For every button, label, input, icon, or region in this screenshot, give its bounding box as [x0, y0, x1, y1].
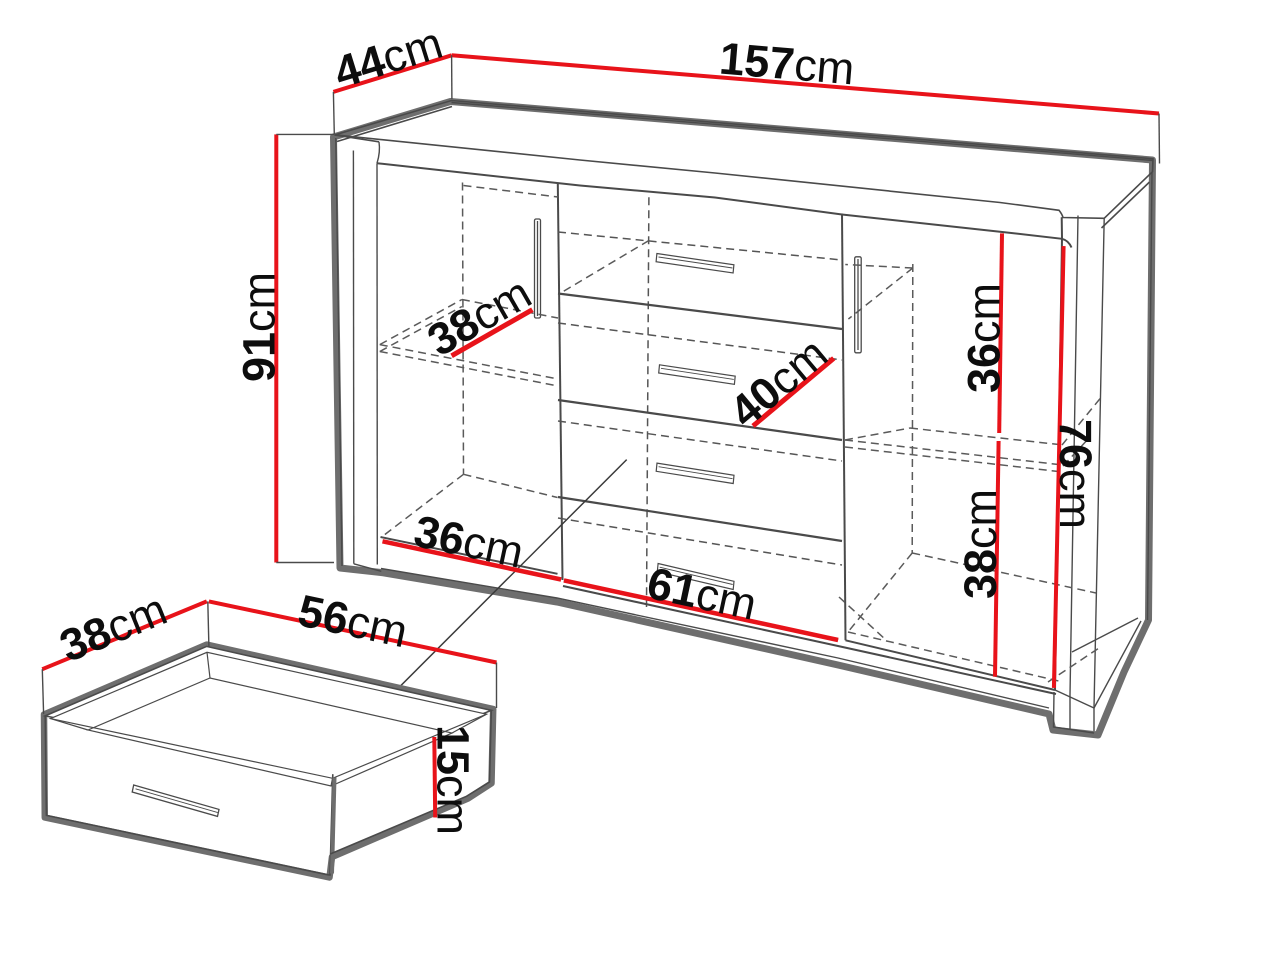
svg-text:36cm: 36cm — [959, 283, 1010, 393]
svg-text:56cm: 56cm — [294, 585, 412, 658]
svg-text:157cm: 157cm — [718, 33, 857, 95]
svg-text:15cm: 15cm — [428, 725, 479, 835]
svg-text:91cm: 91cm — [234, 272, 285, 382]
svg-text:76cm: 76cm — [1050, 419, 1101, 529]
svg-text:38cm: 38cm — [955, 489, 1006, 599]
svg-text:38cm: 38cm — [53, 583, 174, 672]
svg-text:44cm: 44cm — [328, 17, 448, 98]
